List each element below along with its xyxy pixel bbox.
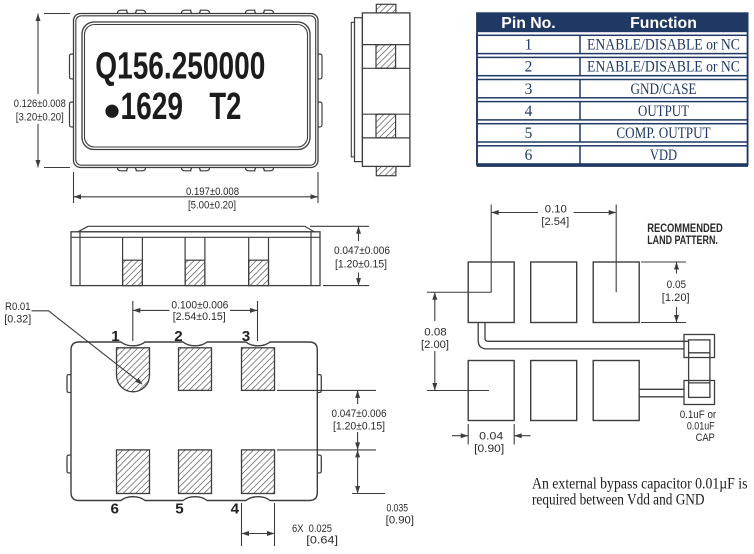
svg-text:0.04: 0.04 xyxy=(479,431,503,443)
svg-text:[2.54±0.15]: [2.54±0.15] xyxy=(173,311,226,323)
svg-text:6: 6 xyxy=(110,501,118,518)
svg-text:4: 4 xyxy=(525,103,533,120)
svg-text:Pin No.: Pin No. xyxy=(501,15,555,32)
svg-text:6: 6 xyxy=(525,147,533,164)
svg-text:R0.01: R0.01 xyxy=(5,301,31,313)
svg-text:required between Vdd and GND: required between Vdd and GND xyxy=(532,491,705,509)
svg-text:0.035: 0.035 xyxy=(387,503,409,515)
svg-text:RECOMMENDED: RECOMMENDED xyxy=(647,222,723,235)
svg-text:5: 5 xyxy=(525,125,533,142)
svg-text:[1.20]: [1.20] xyxy=(662,292,690,304)
svg-text:[0.64]: [0.64] xyxy=(306,535,338,547)
svg-text:ENABLE/DISABLE or NC: ENABLE/DISABLE or NC xyxy=(587,37,740,54)
svg-text:2: 2 xyxy=(174,328,182,345)
svg-text:GND/CASE: GND/CASE xyxy=(631,81,697,98)
svg-text:1: 1 xyxy=(525,37,533,54)
svg-text:0.10: 0.10 xyxy=(545,203,567,215)
svg-text:CAP: CAP xyxy=(696,432,715,444)
svg-text:0.047±0.006: 0.047±0.006 xyxy=(334,245,390,257)
svg-text:Function: Function xyxy=(630,15,697,32)
svg-text:VDD: VDD xyxy=(650,147,677,164)
svg-text:T2: T2 xyxy=(209,85,241,128)
svg-text:[1.20±0.15]: [1.20±0.15] xyxy=(335,258,387,270)
svg-text:COMP. OUTPUT: COMP. OUTPUT xyxy=(616,125,711,142)
svg-text:0.126±0.008: 0.126±0.008 xyxy=(14,98,66,110)
svg-text:[2.54]: [2.54] xyxy=(541,216,569,228)
svg-text:0.05: 0.05 xyxy=(667,279,687,291)
svg-text:0.1uF or: 0.1uF or xyxy=(680,409,717,421)
svg-text:OUTPUT: OUTPUT xyxy=(638,103,689,120)
svg-text:0.01uF: 0.01uF xyxy=(687,421,715,433)
svg-text:[0.90]: [0.90] xyxy=(474,443,504,455)
svg-text:2: 2 xyxy=(525,59,533,76)
svg-text:6X 0.025: 6X 0.025 xyxy=(292,523,332,535)
svg-text:0.047±0.006: 0.047±0.006 xyxy=(332,408,387,420)
svg-text:3: 3 xyxy=(525,81,533,98)
svg-text:3: 3 xyxy=(242,328,250,345)
svg-text:1: 1 xyxy=(111,328,120,345)
svg-text:1629: 1629 xyxy=(121,85,184,128)
svg-text:0.100±0.006: 0.100±0.006 xyxy=(171,299,228,311)
svg-text:ENABLE/DISABLE or NC: ENABLE/DISABLE or NC xyxy=(587,59,740,76)
svg-text:0.08: 0.08 xyxy=(424,327,447,339)
svg-text:[0.32]: [0.32] xyxy=(4,314,31,326)
svg-text:4: 4 xyxy=(231,501,240,518)
svg-text:LAND PATTERN.: LAND PATTERN. xyxy=(647,234,718,247)
svg-text:Q156.250000: Q156.250000 xyxy=(95,45,265,88)
svg-text:[1.20±0.15]: [1.20±0.15] xyxy=(333,421,385,433)
svg-text:[2.00]: [2.00] xyxy=(421,339,449,351)
svg-text:5: 5 xyxy=(175,501,184,518)
svg-text:0.197±0.008: 0.197±0.008 xyxy=(186,186,239,198)
svg-text:[0.90]: [0.90] xyxy=(386,514,414,526)
svg-text:[5.00±0.20]: [5.00±0.20] xyxy=(188,199,236,211)
svg-text:[3.20±0.20]: [3.20±0.20] xyxy=(16,112,64,124)
